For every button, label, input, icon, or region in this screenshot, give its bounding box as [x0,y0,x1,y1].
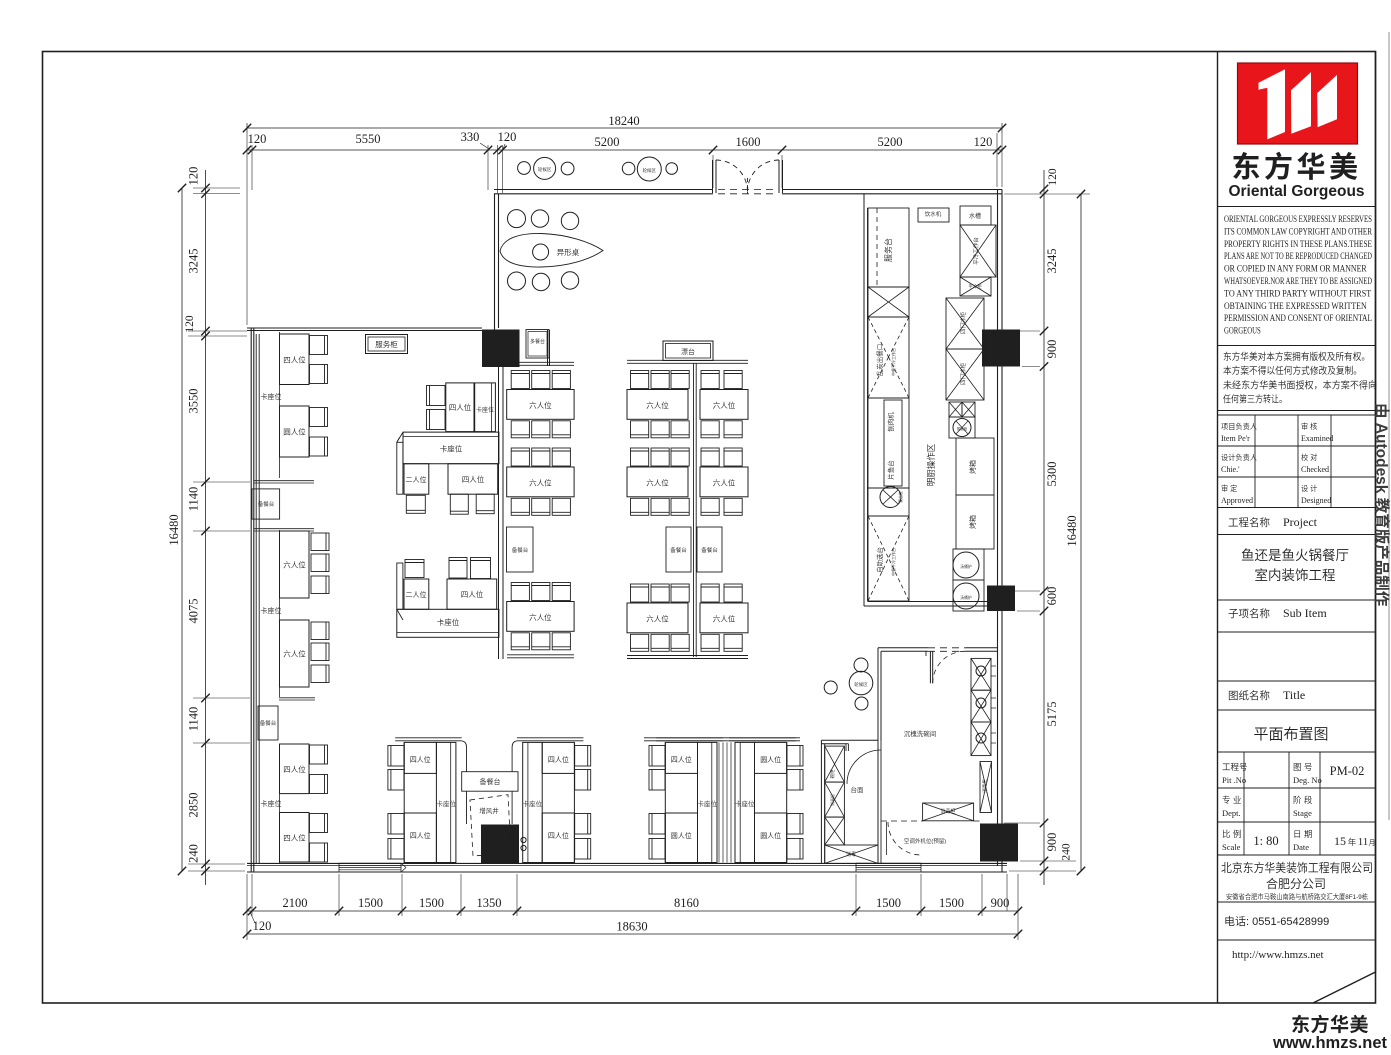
svg-text:阶 段: 阶 段 [1293,794,1313,806]
svg-text:日 期: 日 期 [1293,828,1312,840]
svg-text:GORGEOUS: GORGEOUS [1224,327,1261,337]
svg-text:自助选台: 自助选台 [874,547,884,573]
svg-text:备餐台: 备餐台 [512,546,529,554]
svg-text:饮水机: 饮水机 [925,210,942,218]
svg-text:四人位: 四人位 [449,402,472,413]
svg-text:东方华美对本方案拥有版权及所有权。: 东方华美对本方案拥有版权及所有权。 [1223,349,1370,363]
svg-text:蒙古包: 蒙古包 [898,491,904,503]
svg-text:备餐台: 备餐台 [480,777,501,787]
svg-text:汤桶炉: 汤桶炉 [960,564,972,570]
svg-text:Oriental Gorgeous: Oriental Gorgeous [1228,183,1364,200]
svg-text:11: 11 [1358,836,1369,848]
svg-text:PROPERTY RIGHTS IN THESE PLANS: PROPERTY RIGHTS IN THESE PLANS.THESE [1224,240,1372,250]
svg-text:5200: 5200 [878,135,903,149]
svg-text:5300: 5300 [1045,462,1059,487]
svg-text:审 核: 审 核 [1301,422,1317,432]
svg-text:圆人位: 圆人位 [760,831,781,841]
svg-text:由 Autodesk 教育版产品制作: 由 Autodesk 教育版产品制作 [1372,403,1391,607]
svg-text:六人位: 六人位 [713,478,736,489]
svg-text:六人位: 六人位 [646,614,669,625]
svg-text:5175: 5175 [1045,702,1059,727]
svg-text:3245: 3245 [187,249,201,274]
svg-text:台面: 台面 [851,784,865,794]
svg-text:www.hmzs.net: www.hmzs.net [1272,1034,1387,1052]
svg-text:120: 120 [498,130,517,144]
svg-text:OBTAINING THE EXPRESSED WRITTE: OBTAINING THE EXPRESSED WRITTEN [1224,302,1367,312]
svg-text:专 业: 专 业 [1222,794,1241,806]
svg-text:备餐台: 备餐台 [701,546,718,554]
svg-text:16480: 16480 [1065,515,1079,546]
svg-text:卡座位: 卡座位 [261,392,282,402]
svg-text:四人位: 四人位 [283,354,306,365]
svg-text:六人位: 六人位 [713,614,736,625]
svg-text:120: 120 [248,132,267,146]
svg-text:900: 900 [991,896,1010,910]
svg-text:8160: 8160 [674,896,699,910]
svg-text:120: 120 [187,167,201,186]
svg-text:未经东方华美书面授权，本方案不得向: 未经东方华美书面授权，本方案不得向 [1223,377,1377,391]
svg-text:2850: 2850 [187,793,201,818]
svg-text:比 例: 比 例 [1222,828,1241,840]
svg-text:四人位: 四人位 [283,832,306,843]
svg-text:1140: 1140 [187,707,201,732]
svg-text:平冷工作台: 平冷工作台 [972,237,980,265]
svg-text:1350: 1350 [477,896,502,910]
svg-text:Checked: Checked [1301,465,1329,474]
svg-text:Stage: Stage [1293,808,1312,818]
svg-text:卡座位: 卡座位 [261,799,282,809]
svg-text:900: 900 [1045,340,1059,359]
svg-text:烤箱: 烤箱 [968,515,978,529]
svg-text:设计负责人: 设计负责人 [1221,453,1257,463]
svg-text:卡座位: 卡座位 [440,444,463,455]
svg-text:PM-02: PM-02 [1330,764,1365,778]
svg-text:服务台: 服务台 [883,238,894,262]
svg-text:安徽省合肥市马鞍山南路与航桥路交汇大厦8F1-9栋: 安徽省合肥市马鞍山南路与航桥路交汇大厦8F1-9栋 [1226,891,1368,901]
svg-text:Deg. No: Deg. No [1293,775,1322,785]
svg-text:240: 240 [187,844,201,863]
svg-text:烤箱: 烤箱 [968,460,978,474]
svg-text:消毒柜: 消毒柜 [940,808,955,815]
svg-text:PERMISSION AND CONSENT OF ORIE: PERMISSION AND CONSENT OF ORIENTAL [1224,314,1372,324]
svg-text:圆人位: 圆人位 [283,427,306,438]
svg-text:消毒柜: 消毒柜 [981,779,988,793]
svg-text:四人位: 四人位 [548,755,569,765]
svg-text:18240: 18240 [608,114,639,128]
svg-text:任何第三方转让。: 任何第三方转让。 [1223,392,1287,406]
svg-text:Project: Project [1283,515,1318,529]
svg-text:Item Pe'r: Item Pe'r [1221,434,1250,443]
svg-text:ORIENTAL GORGEOUS EXPRESSLY RE: ORIENTAL GORGEOUS EXPRESSLY RESERVES [1224,215,1372,225]
svg-text:审 定: 审 定 [1221,484,1237,494]
svg-text:平冷柜: 平冷柜 [968,283,982,290]
svg-text:600: 600 [1045,587,1059,606]
svg-text:六人位: 六人位 [529,400,552,411]
svg-text:子项名称: 子项名称 [1228,606,1270,621]
svg-text:六人位: 六人位 [283,560,306,571]
svg-text:5200: 5200 [595,135,620,149]
svg-text:Chie.': Chie.' [1221,465,1240,474]
svg-text:二人位: 二人位 [406,590,427,600]
svg-text:六人位: 六人位 [529,612,552,623]
svg-text:沉槐洗碗间: 沉槐洗碗间 [904,728,937,738]
svg-text:工程名称: 工程名称 [1228,515,1270,530]
svg-text:四人位: 四人位 [410,755,431,765]
svg-text:轮候区: 轮候区 [854,681,868,688]
svg-text:4075: 4075 [187,599,201,624]
svg-text:PLANS ARE NOT TO BE REPRODUCED: PLANS ARE NOT TO BE REPRODUCED CHANGED [1224,252,1372,262]
svg-text:120: 120 [253,919,272,933]
svg-text:240: 240 [1061,843,1073,861]
svg-text:室内装饰工程: 室内装饰工程 [1255,564,1336,584]
svg-text:工程号: 工程号 [1222,761,1248,773]
svg-text:备餐台: 备餐台 [670,546,687,554]
svg-text:卡座位: 卡座位 [698,798,718,808]
svg-text:片鱼台: 片鱼台 [885,460,895,480]
svg-text:Sub Item: Sub Item [1283,606,1327,620]
svg-text:空调外机位(预留): 空调外机位(预留) [904,837,946,845]
svg-text:16480: 16480 [167,514,181,545]
svg-text:异形桌: 异形桌 [557,247,580,258]
svg-text:http://www.hmzs.net: http://www.hmzs.net [1232,949,1324,961]
svg-text:碗柜: 碗柜 [829,769,836,778]
svg-text:卡座位: 卡座位 [436,798,456,808]
svg-text:卡座位: 卡座位 [261,606,282,616]
svg-text:六人位: 六人位 [529,478,552,489]
svg-text:四人位: 四人位 [548,831,569,841]
svg-text:备餐台: 备餐台 [258,500,275,508]
svg-text:中餐平冷工作台: 中餐平冷工作台 [890,348,897,376]
svg-text:Date: Date [1293,842,1309,852]
svg-text:Designed: Designed [1301,496,1331,505]
svg-text:四门冰柜: 四门冰柜 [959,312,967,335]
svg-text:四人位: 四人位 [462,474,485,485]
svg-text:1500: 1500 [419,896,444,910]
svg-text:六人位: 六人位 [283,649,306,660]
svg-text:卡座位: 卡座位 [523,798,543,808]
svg-text:图 号: 图 号 [1293,761,1312,773]
svg-text:月: 月 [1369,838,1376,848]
svg-text:六人位: 六人位 [646,478,669,489]
svg-text:平面布置图: 平面布置图 [1253,723,1328,744]
svg-text:四人位: 四人位 [461,589,484,600]
svg-text:备餐台: 备餐台 [260,719,277,727]
svg-text:四人位: 四人位 [410,831,431,841]
svg-text:图纸名称: 图纸名称 [1228,688,1270,703]
svg-text:漂台: 漂台 [681,347,695,357]
svg-text:东方华美: 东方华美 [1291,1010,1369,1037]
svg-text:四门冰柜: 四门冰柜 [959,363,967,386]
svg-text:Approved: Approved [1221,496,1253,505]
svg-text:卡座位: 卡座位 [476,405,494,414]
svg-text:15: 15 [1334,834,1346,848]
svg-text:Dept.: Dept. [1222,808,1241,818]
svg-text:增风井: 增风井 [479,805,499,815]
svg-text:3550: 3550 [187,389,201,414]
svg-text:1140: 1140 [187,487,201,512]
svg-text:1500: 1500 [876,896,901,910]
svg-text:330: 330 [461,130,480,144]
svg-text:本方案不得以任何方式修改及复制。: 本方案不得以任何方式修改及复制。 [1223,363,1362,377]
svg-text:1600: 1600 [736,135,761,149]
svg-text:1500: 1500 [358,896,383,910]
svg-text:2100: 2100 [283,896,308,910]
svg-text:北京东方华美装饰工程有限公司: 北京东方华美装饰工程有限公司 [1221,859,1373,876]
svg-text:多餐台: 多餐台 [530,338,545,345]
svg-text:5550: 5550 [356,132,381,146]
svg-text:3245: 3245 [1045,249,1059,274]
svg-text:中餐平冷工作台: 中餐平冷工作台 [890,548,897,576]
svg-text:明厨操作区: 明厨操作区 [925,443,937,486]
svg-text:Examined: Examined [1301,434,1333,443]
svg-text:1500: 1500 [939,896,964,910]
svg-text:电话: 0551-65428999: 电话: 0551-65428999 [1224,913,1329,929]
svg-text:Title: Title [1283,688,1305,702]
svg-text:刨肉机: 刨肉机 [885,412,895,432]
svg-text:汤桶炉: 汤桶炉 [960,595,972,601]
svg-text:ITS COMMON LAW COPYRIGHT AND O: ITS COMMON LAW COPYRIGHT AND OTHER [1224,227,1373,237]
svg-text:OR COPIED IN ANY FORM OR MANNE: OR COPIED IN ANY FORM OR MANNER [1224,265,1367,275]
svg-text:四人位: 四人位 [283,764,306,775]
svg-text:18630: 18630 [616,920,647,934]
svg-text:卡座位: 卡座位 [437,617,460,628]
svg-text:鱼还是鱼火锅餐厅: 鱼还是鱼火锅餐厅 [1241,544,1349,564]
svg-text:六人位: 六人位 [713,400,736,411]
svg-text:Pit .No: Pit .No [1222,775,1246,785]
svg-text:1: 80: 1: 80 [1253,834,1278,848]
svg-text:圆人位: 圆人位 [760,755,781,765]
svg-text:卡座位: 卡座位 [735,798,755,808]
svg-text:900: 900 [1045,833,1059,852]
svg-text:轮候区: 轮候区 [643,167,657,174]
svg-text:年: 年 [1348,836,1357,848]
svg-text:东方华美: 东方华美 [1231,144,1361,186]
svg-text:合肥分公司: 合肥分公司 [1266,875,1326,892]
svg-text:蒸饭柜: 蒸饭柜 [957,426,968,432]
svg-text:六人位: 六人位 [646,400,669,411]
svg-text:校 对: 校 对 [1301,453,1317,463]
svg-text:Scale: Scale [1222,842,1241,852]
svg-text:120: 120 [1047,168,1059,186]
svg-text:圆人位: 圆人位 [671,831,692,841]
svg-text:TO ANY THIRD PARTY WITHOUT FIR: TO ANY THIRD PARTY WITHOUT FIRST [1224,289,1371,299]
svg-text:消毒柜: 消毒柜 [829,794,836,806]
svg-text:WHATSOEVER.NOR ARE THEY TO BE: WHATSOEVER.NOR ARE THEY TO BE ASSIGNED [1224,277,1372,287]
svg-text:项目负责人: 项目负责人 [1221,422,1257,432]
svg-text:乱炭出餐口: 乱炭出餐口 [874,344,884,377]
svg-text:二人位: 二人位 [406,475,427,485]
svg-text:设 计: 设 计 [1301,484,1317,494]
svg-text:120: 120 [974,135,993,149]
svg-text:轮候区: 轮候区 [538,166,552,173]
svg-text:消毒: 消毒 [846,851,856,858]
svg-text:服务柜: 服务柜 [375,339,398,350]
svg-text:水槽: 水槽 [969,211,981,220]
svg-text:四人位: 四人位 [671,755,692,765]
svg-text:120: 120 [184,315,196,333]
